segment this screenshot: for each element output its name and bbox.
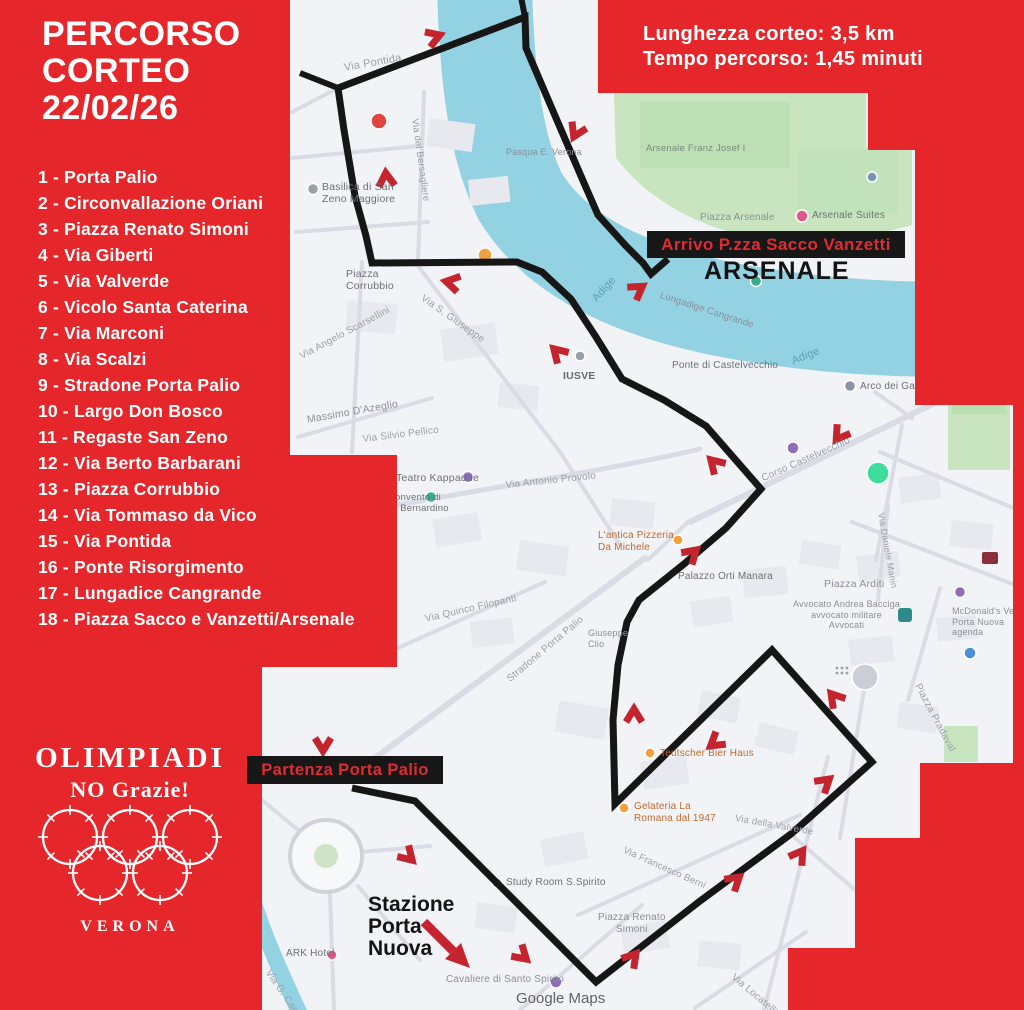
logo-title: OLIMPIADI bbox=[28, 742, 232, 775]
map-label-piazza-arditi: Piazza Arditi bbox=[824, 578, 884, 590]
map-label-via-del-bersagliere: Via del Bersagliere bbox=[409, 118, 432, 202]
map-label-adige-1: Adige bbox=[590, 274, 619, 304]
route-list-item: 7 - Via Marconi bbox=[38, 320, 355, 346]
poster-title: PERCORSO CORTEO 22/02/26 bbox=[42, 16, 241, 127]
route-list-item: 13 - Piazza Corrubbio bbox=[38, 476, 355, 502]
map-label-piazza-pradaval: Piazza Pradaval bbox=[912, 682, 958, 754]
map-label-corso-castelvecchio: Corso Castelvecchio bbox=[760, 435, 852, 485]
logo-city: VERONA bbox=[28, 918, 232, 936]
map-label-antica-pizzeria: L'antica Pizzeria Da Michele bbox=[598, 530, 674, 554]
partenza-callout: Partenza Porta Palio bbox=[247, 756, 443, 784]
logo-subtitle: NO Grazie! bbox=[28, 777, 232, 803]
route-street-list: 1 - Porta Palio2 - Circonvallazione Oria… bbox=[38, 164, 355, 632]
map-label-iusve: IUSVE bbox=[563, 370, 596, 382]
map-label-convento: Convento di S. Bernardino bbox=[388, 492, 449, 514]
route-list-item: 2 - Circonvallazione Oriani bbox=[38, 190, 355, 216]
map-label-via-locatelli: Via Locatelli bbox=[728, 972, 779, 1010]
map-label-arco-dei-gavi: Arco dei Gavi bbox=[860, 381, 923, 393]
route-list-item: 16 - Ponte Risorgimento bbox=[38, 554, 355, 580]
google-maps-watermark: Google Maps bbox=[516, 990, 605, 1007]
route-list-item: 10 - Largo Don Bosco bbox=[38, 398, 355, 424]
route-list-item: 15 - Via Pontida bbox=[38, 528, 355, 554]
map-label-giuseppe-clio: Giuseppe Clio bbox=[588, 628, 628, 649]
stazione-porta-nuova-label: Stazione Porta Nuova bbox=[368, 894, 454, 960]
route-list-item: 12 - Via Berto Barbarani bbox=[38, 450, 355, 476]
arrivo-callout: Arrivo P.zza Sacco Vanzetti bbox=[647, 231, 905, 258]
route-list-item: 6 - Vicolo Santa Caterina bbox=[38, 294, 355, 320]
poster-red-step-bottom-right-2 bbox=[855, 838, 1024, 948]
map-label-cavaliere: Cavaliere di Santo Spirito bbox=[446, 974, 564, 986]
map-label-study-room: Study Room S.Spirito bbox=[506, 877, 606, 889]
title-line-3: 22/02/26 bbox=[42, 90, 241, 127]
map-label-lungadige-cangrande: Lungadige Cangrande bbox=[659, 290, 756, 331]
route-list-item: 14 - Via Tommaso da Vico bbox=[38, 502, 355, 528]
route-list-item: 1 - Porta Palio bbox=[38, 164, 355, 190]
map-label-via-francesco-berni: Via Francesco Berni bbox=[621, 845, 707, 892]
title-line-2: CORTEO bbox=[42, 53, 241, 90]
route-list-item: 5 - Via Valverde bbox=[38, 268, 355, 294]
map-label-ponte-castelvecchio: Ponte di Castelvecchio bbox=[672, 360, 778, 372]
title-line-1: PERCORSO bbox=[42, 16, 241, 53]
map-label-via-s-giuseppe: Via S. Giuseppe bbox=[418, 293, 486, 346]
poster-red-step-bottom-right-3 bbox=[788, 948, 1024, 1010]
info-length: Lunghezza corteo: 3,5 km bbox=[643, 22, 923, 47]
map-label-via-camuzzoni: Via G. Camuzzoni bbox=[262, 968, 320, 1010]
map-label-adige-2: Adige bbox=[790, 345, 822, 368]
map-label-teatro-kappadue: Teatro Kappadue bbox=[396, 472, 479, 484]
poster-red-step-top-right-1 bbox=[868, 93, 1024, 150]
map-label-arsenale-suites: Arsenale Suites bbox=[812, 210, 885, 222]
info-duration: Tempo percorso: 1,45 minuti bbox=[643, 47, 923, 72]
route-list-item: 18 - Piazza Sacco e Vanzetti/Arsenale bbox=[38, 606, 355, 632]
map-label-palazzo-orti-manara: Palazzo Orti Manara bbox=[678, 571, 773, 583]
route-list-item: 3 - Piazza Renato Simoni bbox=[38, 216, 355, 242]
barbed-wire-olympic-rings-icon bbox=[30, 803, 230, 909]
route-list-item: 9 - Stradone Porta Palio bbox=[38, 372, 355, 398]
route-list-item: 4 - Via Giberti bbox=[38, 242, 355, 268]
map-label-bier-haus: Teutscher Bier Haus bbox=[660, 748, 754, 760]
protest-route-poster: Via PontidaBasilica di San Zeno Maggiore… bbox=[0, 0, 1024, 1010]
map-label-piazza-renato-simoni: Piazza Renato Simoni bbox=[598, 912, 666, 936]
map-label-arsenale-franz: Arsenale Franz Josef I bbox=[646, 143, 745, 154]
map-label-gelateria: Gelateria La Romana dal 1947 bbox=[634, 801, 716, 825]
map-label-stradone-porta-palio: Stradone Porta Palio bbox=[505, 614, 586, 685]
map-label-via-silvio-pellico: Via Silvio Pellico bbox=[362, 425, 440, 446]
route-info-box: Lunghezza corteo: 3,5 km Tempo percorso:… bbox=[643, 22, 923, 72]
map-label-avvocato: Avvocato Andrea Bacciga avvocato militar… bbox=[793, 599, 900, 631]
map-label-piazza-arsenale: Piazza Arsenale bbox=[700, 212, 775, 224]
map-label-via-antonio-provolo: Via Antonio Provolo bbox=[505, 470, 597, 491]
map-label-pasqua: Pasqua E. Verona bbox=[506, 147, 582, 158]
arsenale-label: ARSENALE bbox=[704, 257, 850, 286]
olympics-no-thanks-logo: OLIMPIADI NO Grazie! VERONA bbox=[28, 742, 232, 936]
map-label-via-pontida: Via Pontida bbox=[343, 52, 403, 75]
map-label-via-della-valverde: Via della Valverde bbox=[734, 813, 814, 838]
map-label-via-quirico-filopanti: Via Quirico Filopanti bbox=[424, 593, 518, 626]
poster-red-step-top-right-2 bbox=[915, 150, 1024, 405]
poster-red-step-bottom-right-1 bbox=[920, 763, 1024, 838]
route-list-item: 8 - Via Scalzi bbox=[38, 346, 355, 372]
map-label-ark-hotel: ARK Hotel bbox=[286, 948, 335, 960]
poster-red-strip-right bbox=[1013, 405, 1024, 763]
route-list-item: 17 - Lungadice Cangrande bbox=[38, 580, 355, 606]
route-list-item: 11 - Regaste San Zeno bbox=[38, 424, 355, 450]
